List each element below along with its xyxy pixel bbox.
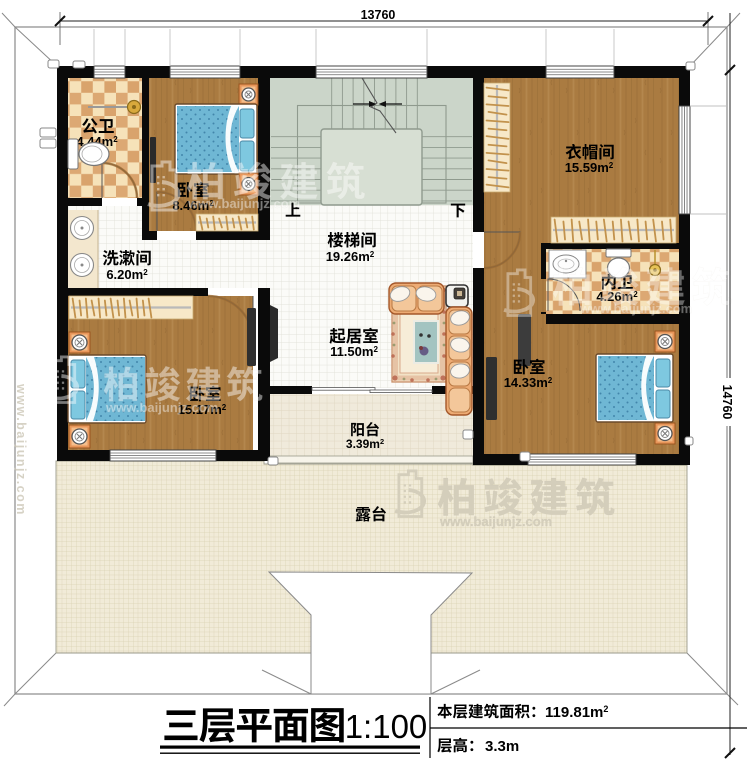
- svg-text:1:100: 1:100: [345, 708, 428, 745]
- svg-text:6.20m2: 6.20m2: [106, 267, 148, 282]
- svg-text:13760: 13760: [361, 8, 396, 22]
- svg-text:www.baijunjz.com: www.baijunjz.com: [187, 196, 300, 211]
- svg-text:14.33m2: 14.33m2: [504, 375, 553, 390]
- svg-text:3.3m: 3.3m: [485, 738, 519, 755]
- svg-text:119.81m2: 119.81m2: [545, 704, 608, 721]
- svg-text:www.baijunjz.com: www.baijunjz.com: [579, 301, 692, 316]
- svg-text:14760: 14760: [720, 385, 734, 420]
- svg-text:15.59m2: 15.59m2: [565, 160, 614, 175]
- svg-text:11.50m2: 11.50m2: [330, 344, 378, 359]
- svg-text:www.baijunjz.com: www.baijunjz.com: [14, 383, 28, 516]
- svg-text:www.baijunjz.com: www.baijunjz.com: [439, 514, 552, 529]
- svg-text:www.baijunjz.com: www.baijunjz.com: [105, 400, 218, 415]
- svg-text:19.26m2: 19.26m2: [326, 249, 375, 264]
- svg-text:3.39m2: 3.39m2: [346, 437, 384, 451]
